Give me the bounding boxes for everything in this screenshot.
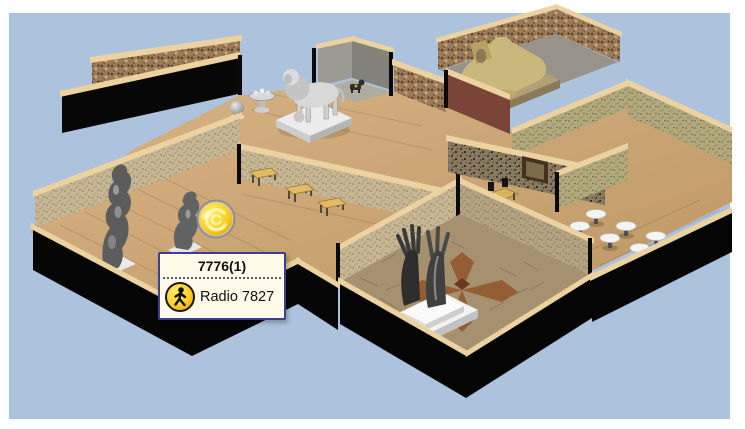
agent-coin-icon[interactable] [197,200,236,239]
application-window: 7776(1) Radio 7827 [0,0,745,429]
tooltip-divider [163,277,281,279]
tooltip-agent-label: Radio 7827 [200,289,274,305]
simulation-viewport[interactable] [0,0,745,429]
tooltip-title: 7776(1) [160,254,284,275]
agent-tooltip: 7776(1) Radio 7827 [158,252,286,320]
pedestrian-icon [164,281,196,313]
